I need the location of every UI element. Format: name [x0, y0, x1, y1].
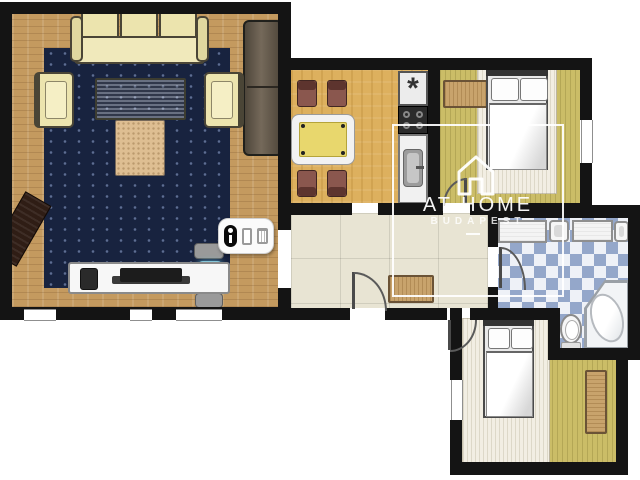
- dresser: [443, 80, 492, 108]
- ottoman: [115, 120, 165, 176]
- coffee-table: [95, 78, 186, 120]
- window: [130, 309, 152, 321]
- duvet: [486, 351, 533, 417]
- wall: [385, 308, 447, 320]
- trash-icon: [257, 228, 268, 244]
- window: [176, 309, 222, 321]
- washbasin-bowl: [619, 226, 624, 237]
- tv: [120, 268, 182, 282]
- dining-chair: [327, 80, 347, 107]
- headboard: [486, 70, 548, 76]
- house-outline-icon: [452, 152, 500, 196]
- armchair-right: [204, 72, 244, 128]
- wardrobe: [585, 370, 607, 434]
- dining-chair: [327, 170, 347, 197]
- double-bed-bottom: [483, 320, 534, 418]
- wall: [450, 462, 628, 475]
- wall: [616, 348, 628, 475]
- wall: [628, 205, 640, 360]
- watermark-title: AT HOME: [394, 194, 562, 217]
- vanity-counter: [572, 220, 613, 242]
- wall: [291, 203, 352, 215]
- burner: [403, 111, 410, 118]
- table-corner-dot: [341, 124, 345, 128]
- pillow: [511, 328, 533, 349]
- chair-back: [328, 81, 346, 90]
- sofa-seat: [74, 36, 205, 64]
- wall: [0, 2, 291, 14]
- pillow: [491, 78, 519, 101]
- chaise-seam: [247, 86, 279, 88]
- person-icon: [224, 225, 237, 247]
- speaker: [80, 268, 98, 290]
- freezer-symbol: *: [407, 74, 419, 104]
- legend-badge: [218, 218, 274, 254]
- sofa-arm: [196, 16, 209, 62]
- dining-chair: [297, 170, 317, 197]
- washbasin: [614, 221, 629, 242]
- wall: [580, 58, 592, 120]
- chaise-lounge: [243, 20, 283, 156]
- headboard: [483, 320, 534, 326]
- table-corner-dot: [341, 151, 345, 155]
- office-chair-base: [195, 293, 223, 308]
- table-corner-dot: [301, 151, 305, 155]
- chair-back: [298, 187, 316, 196]
- watermark-box: AT HOME BUDAPEST: [392, 124, 564, 297]
- watermark-dash: [466, 233, 480, 235]
- armchair-seat: [211, 81, 233, 119]
- pillow: [488, 328, 510, 349]
- dining-table-top: [299, 122, 347, 157]
- window: [451, 380, 463, 420]
- chair-back: [298, 81, 316, 90]
- wall: [278, 308, 350, 320]
- chair-back: [328, 187, 346, 196]
- sofa-arm: [70, 16, 83, 62]
- wall: [291, 58, 592, 70]
- toilet: [560, 314, 582, 344]
- watermark-subtitle: BUDAPEST: [394, 216, 562, 227]
- floor-plan: *: [0, 0, 640, 480]
- table-corner-dot: [301, 124, 305, 128]
- toilet-seat: [565, 320, 579, 340]
- armchair-left: [34, 72, 74, 128]
- window: [24, 309, 56, 321]
- wall: [278, 2, 291, 230]
- door-icon: [242, 228, 252, 245]
- burner: [416, 111, 423, 118]
- fridge-freezer: *: [398, 71, 428, 106]
- wall: [470, 308, 560, 320]
- dining-chair: [297, 80, 317, 107]
- sofa: [70, 6, 209, 64]
- wall: [0, 2, 12, 320]
- window: [581, 120, 593, 163]
- armchair-seat: [45, 81, 67, 119]
- pillow: [520, 78, 548, 101]
- dining-table: [291, 114, 355, 165]
